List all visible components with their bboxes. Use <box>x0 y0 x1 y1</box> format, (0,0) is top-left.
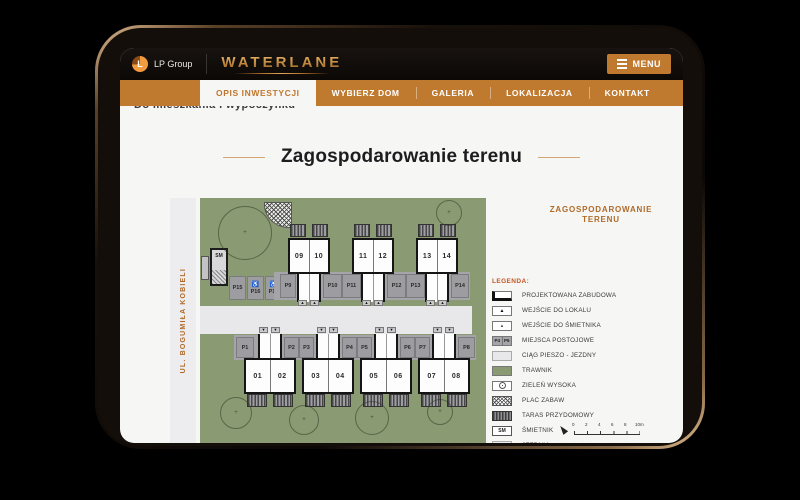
legend-item: PROJEKTOWANA ZABUDOWA <box>492 290 682 301</box>
site-plan: SM P15 ♿P16 ♿P17 P9 P10 P11 P12 P13 P14 … <box>200 198 486 443</box>
tree-icon: + <box>427 399 453 425</box>
grass-swatch <box>492 366 512 376</box>
scale-tick: 2 <box>585 422 588 427</box>
building-stem <box>374 334 398 360</box>
parking-spot: P11 <box>342 274 361 298</box>
plan-panel-title: ZAGOSPODAROWANIE TERENU <box>515 205 683 226</box>
entrance-arrow-icon: ▼ <box>329 327 338 333</box>
building: 09 10 <box>288 238 330 274</box>
entrance-arrow-icon: ▲ <box>374 300 383 306</box>
logo-text[interactable]: LP Group <box>154 59 192 69</box>
entrance-arrow-icon: ▲ <box>426 300 435 306</box>
scale-tick: 6 <box>611 422 614 427</box>
entrance-arrow-icon: ▼ <box>271 327 280 333</box>
header-divider <box>206 54 207 74</box>
scale-bar: 0 2 4 6 8 10m <box>558 422 642 438</box>
house-unit: 04 <box>328 360 353 392</box>
trash-shed: SM <box>210 248 228 286</box>
brand-title: WATERLANE <box>221 54 342 71</box>
house-unit: 07 <box>420 360 444 392</box>
parking-spot: P1 <box>236 337 254 358</box>
house-unit: 10 <box>309 240 329 272</box>
house-unit: 11 <box>354 240 373 272</box>
terrace <box>273 394 293 407</box>
parking-spot: P6 <box>400 337 415 358</box>
parking-spot: P8 <box>458 337 475 358</box>
building: 01 02 <box>244 358 296 394</box>
house-unit: 12 <box>373 240 393 272</box>
house-unit: 08 <box>444 360 469 392</box>
page-content: Do mieszkania i wypoczynku Zagospodarowa… <box>120 106 683 443</box>
parking-spot: P9 <box>280 274 296 298</box>
entrance-arrow-icon: ▼ <box>445 327 454 333</box>
brand[interactable]: WATERLANE <box>221 54 342 74</box>
tab-kontakt[interactable]: KONTAKT <box>589 80 666 106</box>
entrance-arrow-icon: ▼ <box>433 327 442 333</box>
parking-spot-accessible: ♿P16 <box>247 276 264 300</box>
trash-entrance-arrow-swatch: ▲ <box>492 321 512 331</box>
parking-spot: P4 <box>342 337 357 358</box>
screen: L LP Group WATERLANE MENU OPIS INWESTYCJ… <box>120 48 683 443</box>
entrance-arrow-icon: ▲ <box>310 300 319 306</box>
tablet-frame: L LP Group WATERLANE MENU OPIS INWESTYCJ… <box>95 25 705 449</box>
site-header: L LP Group WATERLANE MENU <box>120 48 683 80</box>
hamburger-icon <box>617 59 627 69</box>
house-unit: 02 <box>270 360 295 392</box>
small-shed <box>201 256 209 280</box>
clipped-heading: Do mieszkania i wypoczynku <box>134 106 295 111</box>
entrance-arrow-swatch: ▲ <box>492 306 512 316</box>
building-stem <box>258 334 282 360</box>
scale-tick: 0 <box>572 422 575 427</box>
building-stem <box>316 334 340 360</box>
parking-spot: P3 <box>299 337 314 358</box>
terrace <box>354 224 370 237</box>
building: 05 06 <box>360 358 412 394</box>
building: 03 04 <box>302 358 354 394</box>
tab-wybierz-dom[interactable]: WYBIERZ DOM <box>316 80 416 106</box>
roadway-swatch <box>492 441 512 444</box>
tab-opis-inwestycji[interactable]: OPIS INWESTYCJI <box>200 80 316 106</box>
terrace <box>312 224 328 237</box>
parking-spot: P13 <box>406 274 425 298</box>
terrace-swatch <box>492 411 512 421</box>
entrance-arrow-icon: ▼ <box>317 327 326 333</box>
entrance-arrow-icon: ▲ <box>298 300 307 306</box>
entrance-arrow-icon: ▲ <box>438 300 447 306</box>
tab-lokalizacja[interactable]: LOKALIZACJA <box>490 80 589 106</box>
legend-item: TRAWNIK <box>492 365 682 376</box>
parking-spot: P14 <box>451 274 469 298</box>
legend-item: ▲ WEJŚCIE DO LOKALU <box>492 305 682 316</box>
terrace <box>418 224 434 237</box>
tree-icon: + <box>220 397 252 429</box>
scale-ruler <box>574 431 640 435</box>
legend-heading: LEGENDA: <box>492 278 529 285</box>
parking-spot: P5 <box>357 337 372 358</box>
terrace <box>290 224 306 237</box>
house-unit: 03 <box>304 360 328 392</box>
parking-spot: P12 <box>387 274 406 298</box>
street-label: UL. BOGUMIŁA KOBIELI <box>180 268 187 373</box>
legend-item: TARAS PRZYDOMOWY <box>492 410 682 421</box>
main-nav: OPIS INWESTYCJI WYBIERZ DOM GALERIA LOKA… <box>120 80 683 106</box>
terrace <box>331 394 351 407</box>
menu-label: MENU <box>633 59 662 69</box>
tall-greenery-swatch <box>492 381 512 391</box>
house-unit: 13 <box>418 240 437 272</box>
tree-icon: + <box>289 405 319 435</box>
legend-item: PLAC ZABAW <box>492 395 682 406</box>
tablet-bezel: L LP Group WATERLANE MENU OPIS INWESTYCJ… <box>98 28 702 446</box>
building-stem <box>361 272 385 302</box>
tree-icon: + <box>436 200 462 226</box>
terrace <box>376 224 392 237</box>
parking-spot: P7 <box>415 337 430 358</box>
legend-item: ZIELEŃ WYSOKA <box>492 380 682 391</box>
lp-group-logo-icon[interactable]: L <box>132 56 148 72</box>
building: 11 12 <box>352 238 394 274</box>
parking-spot: P15 <box>229 276 246 300</box>
entrance-arrow-icon: ▼ <box>375 327 384 333</box>
building-stem <box>425 272 449 302</box>
brand-underline <box>234 73 330 74</box>
house-unit: 06 <box>386 360 411 392</box>
street-strip: UL. BOGUMIŁA KOBIELI <box>170 198 196 443</box>
north-arrow-icon <box>558 424 568 435</box>
playground-swatch <box>492 396 512 406</box>
terrace <box>389 394 409 407</box>
scale-tick: 4 <box>598 422 601 427</box>
legend-item: CIĄG PIESZO - JEZDNY <box>492 350 682 361</box>
trash-swatch: SM <box>492 426 512 436</box>
legend-item: ▲ WEJŚCIE DO ŚMIETNIKA <box>492 320 682 331</box>
building-outline-swatch <box>492 291 512 301</box>
building-stem <box>432 334 456 360</box>
house-unit: 05 <box>362 360 386 392</box>
entrance-arrow-icon: ▼ <box>259 327 268 333</box>
tree-icon: + <box>355 401 389 435</box>
menu-button[interactable]: MENU <box>607 54 672 74</box>
scale-tick: 10m <box>635 422 644 427</box>
building: 13 14 <box>416 238 458 274</box>
entrance-arrow-icon: ▼ <box>387 327 396 333</box>
building-stem <box>297 272 321 302</box>
wheelchair-icon: ♿ <box>252 282 259 288</box>
parking-swatch: P4P5 <box>492 336 512 346</box>
section-title-row: Zagospodarowanie terenu <box>120 146 683 168</box>
legend-item: P4P5 MIEJSCA POSTOJOWE <box>492 335 682 346</box>
title-decor-line-left <box>223 157 265 158</box>
house-unit: 01 <box>246 360 270 392</box>
entrance-arrow-icon: ▲ <box>362 300 371 306</box>
tab-galeria[interactable]: GALERIA <box>416 80 490 106</box>
page-title: Zagospodarowanie terenu <box>281 146 522 168</box>
parking-spot: P2 <box>284 337 299 358</box>
road-swatch <box>492 351 512 361</box>
legend-item: JEZDNIA <box>492 440 682 443</box>
legend: PROJEKTOWANA ZABUDOWA ▲ WEJŚCIE DO LOKAL… <box>492 290 682 443</box>
house-unit: 14 <box>437 240 457 272</box>
building: 07 08 <box>418 358 470 394</box>
scale-tick: 8 <box>624 422 627 427</box>
house-unit: 09 <box>290 240 309 272</box>
title-decor-line-right <box>538 157 580 158</box>
tree-icon: + <box>218 206 272 260</box>
parking-spot: P10 <box>323 274 342 298</box>
